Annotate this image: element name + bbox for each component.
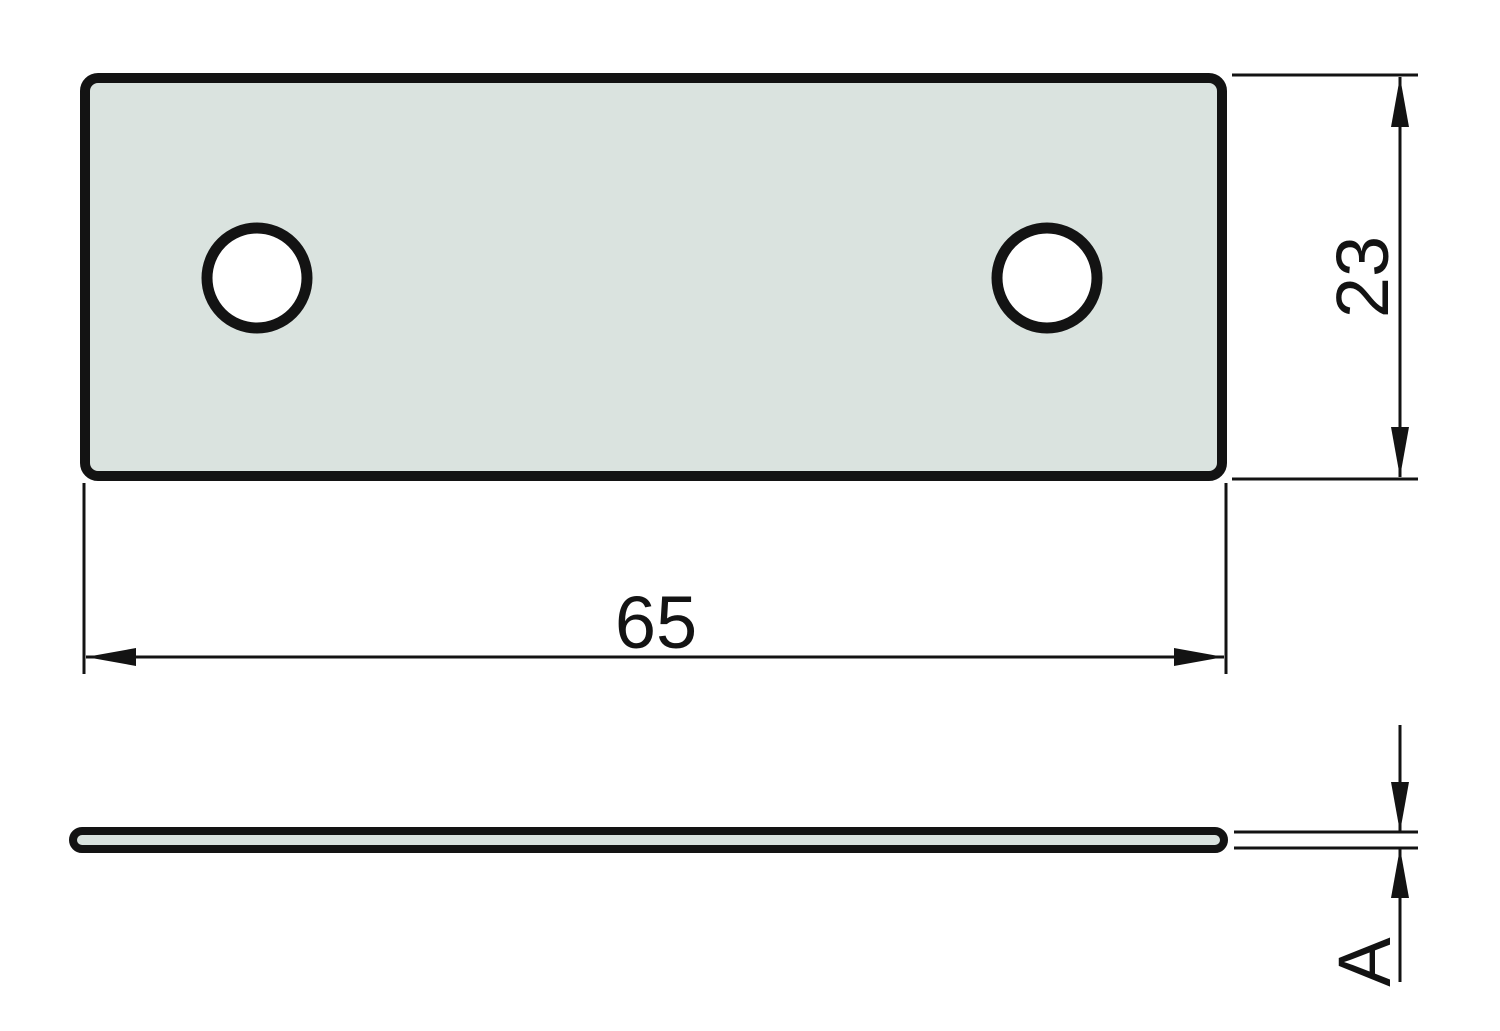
hole-right bbox=[997, 228, 1097, 328]
dimension-thickness: A bbox=[1234, 725, 1418, 987]
width-dimension-label: 65 bbox=[615, 581, 697, 664]
technical-drawing-canvas: 23 65 A bbox=[0, 0, 1500, 1031]
thickness-dimension-label: A bbox=[1323, 937, 1406, 987]
arrow-down-icon bbox=[1391, 427, 1409, 477]
plate-side-view bbox=[73, 831, 1224, 849]
arrow-up-icon bbox=[1391, 77, 1409, 127]
top-view bbox=[85, 78, 1222, 476]
arrow-up-icon bbox=[1391, 848, 1409, 898]
arrow-down-icon bbox=[1391, 782, 1409, 832]
dimension-height: 23 bbox=[1232, 75, 1418, 479]
arrow-left-icon bbox=[86, 648, 136, 666]
height-dimension-label: 23 bbox=[1321, 236, 1404, 318]
arrow-right-icon bbox=[1174, 648, 1224, 666]
side-view bbox=[73, 831, 1224, 849]
plate-dimension-drawing: 23 65 A bbox=[0, 0, 1500, 1031]
dimension-width: 65 bbox=[84, 483, 1226, 674]
hole-left bbox=[207, 228, 307, 328]
